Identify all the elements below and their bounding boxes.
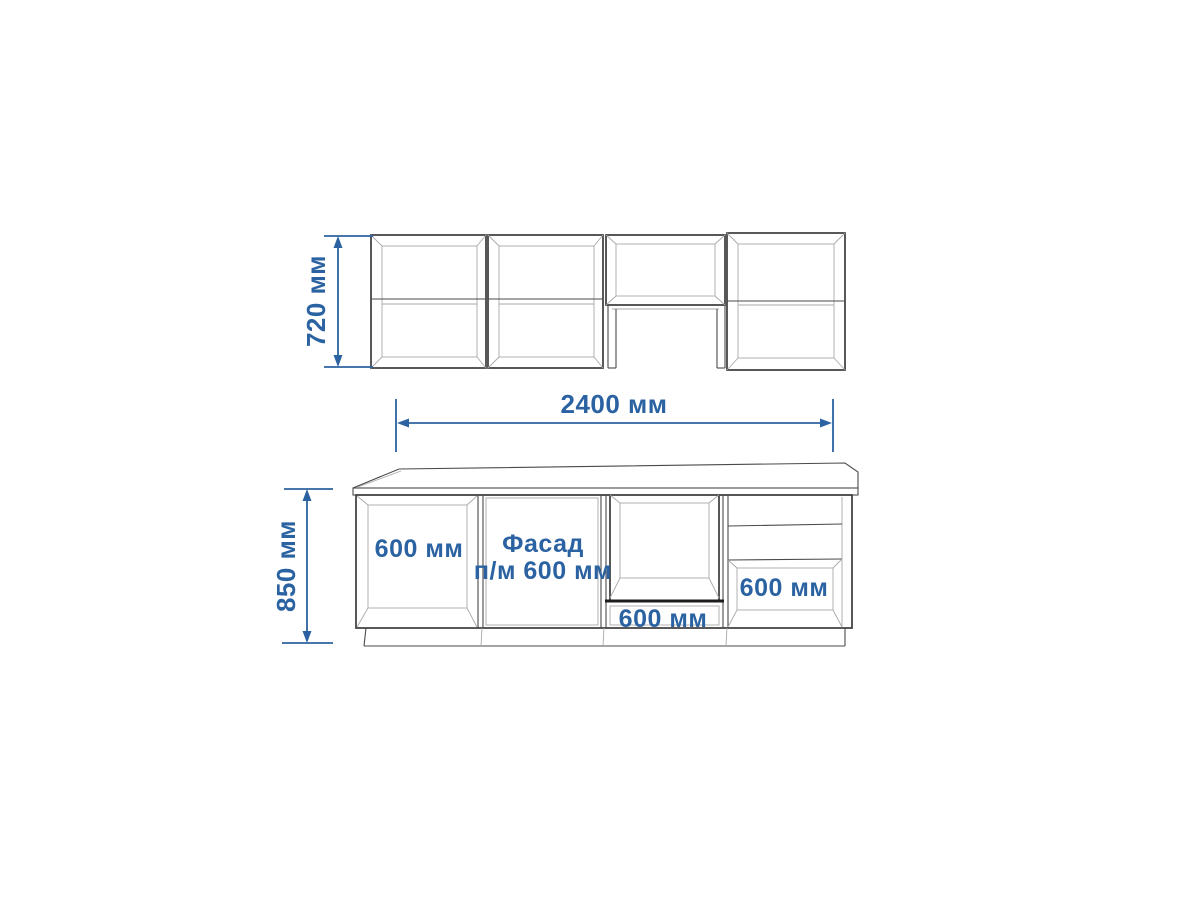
total-width-value: 2400 мм <box>560 389 667 419</box>
open-cabinet-width-label: 600 мм <box>375 535 464 563</box>
drawer-cabinet-width-label: 600 мм <box>740 574 829 602</box>
kitchen-dimension-drawing: 720 мм 2400 мм <box>0 0 1201 900</box>
facade-label-line1: Фасад <box>502 530 584 558</box>
wall-cabinet-hood <box>606 235 725 368</box>
wall-cabinet-4 <box>727 233 845 370</box>
base-drawer-cabinet <box>728 497 842 627</box>
dimension-upper-height: 720 мм <box>301 236 373 367</box>
upper-height-value: 720 мм <box>301 255 331 347</box>
dimension-base-height: 850 мм <box>271 489 333 643</box>
wall-cabinet-2 <box>488 235 603 368</box>
countertop <box>353 463 858 495</box>
drawing-svg: 720 мм 2400 мм <box>0 0 1201 900</box>
wall-cabinet-1 <box>371 235 486 368</box>
oven-drawer-width-label: 600 мм <box>619 605 708 633</box>
base-plinth <box>364 628 845 646</box>
facade-label-line2: п/м 600 мм <box>474 557 612 585</box>
dimension-total-width: 2400 мм <box>396 389 833 452</box>
base-height-value: 850 мм <box>271 520 301 612</box>
